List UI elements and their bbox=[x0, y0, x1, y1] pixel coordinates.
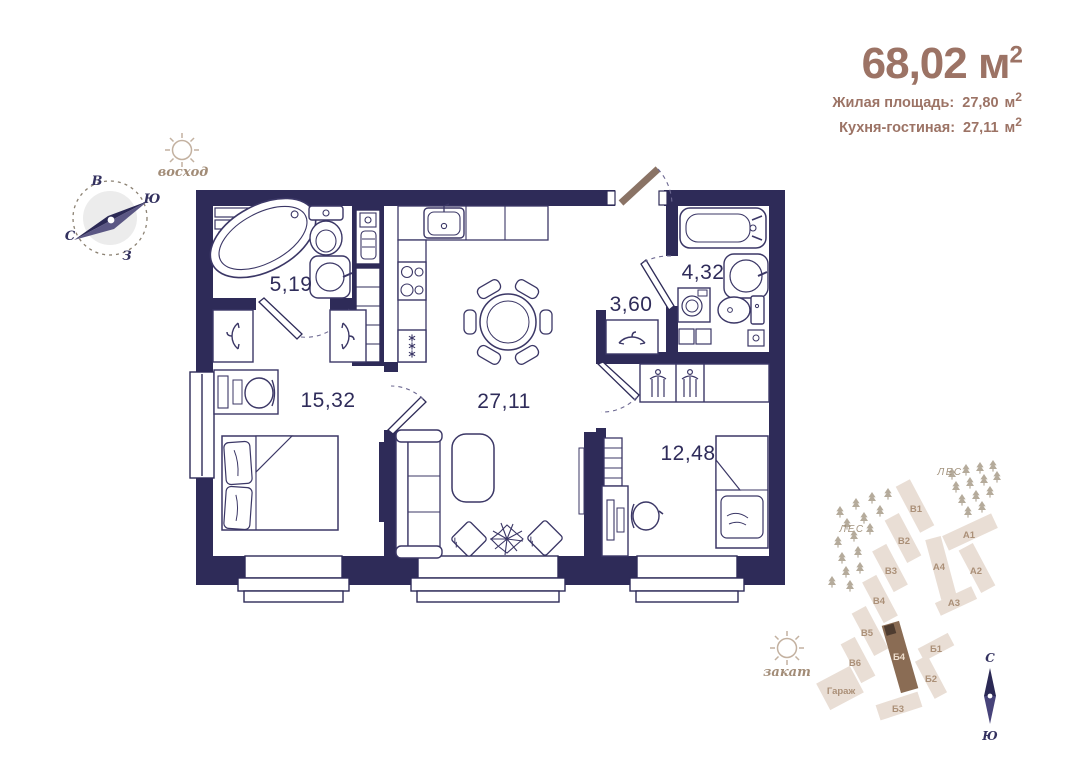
toilet-icon bbox=[309, 206, 343, 255]
living-area-unit: м bbox=[1005, 95, 1016, 111]
bathtub-icon bbox=[680, 208, 766, 248]
site-buildings bbox=[816, 479, 998, 720]
kitchen-counter bbox=[398, 206, 548, 240]
floor-plan-page: 68,02 м2 Жилая площадь:27,80м2 Кухня-гос… bbox=[0, 0, 1090, 761]
double-bed-icon bbox=[222, 436, 338, 530]
total-area-exp: 2 bbox=[1010, 41, 1022, 68]
tv-icon bbox=[579, 448, 584, 514]
building-label-v3: В3 bbox=[885, 566, 897, 577]
bedroom-door bbox=[388, 386, 426, 434]
building-label-a1: А1 bbox=[963, 530, 976, 541]
pillow-icon bbox=[224, 441, 253, 485]
entrance-door-leaf bbox=[621, 169, 658, 203]
pillow-icon bbox=[721, 496, 763, 538]
compass-label-top: В bbox=[91, 174, 103, 189]
kitchen-area-exp: 2 bbox=[1015, 115, 1022, 129]
building-label-v6: В6 bbox=[849, 658, 861, 669]
compass-label-right: Ю bbox=[143, 192, 161, 207]
siteplan: ЛЕС ЛЕС В1 В2 В3 bbox=[816, 460, 1001, 743]
total-area: 68,02 м2 bbox=[832, 42, 1022, 86]
chair-icon bbox=[632, 502, 664, 530]
living-area bbox=[396, 430, 584, 559]
sunrise-icon bbox=[165, 133, 199, 167]
site-compass-needle-bottom bbox=[984, 696, 996, 724]
total-area-unit: м bbox=[978, 39, 1010, 88]
sunset-icon bbox=[770, 631, 804, 665]
kitchen-area-value: 27,11 bbox=[963, 120, 999, 136]
sunset-label: закат bbox=[763, 665, 811, 680]
pouf-icon bbox=[449, 521, 487, 559]
sunrise-label: восход bbox=[158, 165, 209, 180]
entrance-door bbox=[607, 169, 672, 205]
building-label-garage: Гараж bbox=[827, 686, 856, 697]
round-sink-icon bbox=[724, 254, 768, 298]
bedroom-closets bbox=[213, 310, 366, 362]
forest-label-left: ЛЕС bbox=[838, 524, 864, 535]
forest-label-right: ЛЕС bbox=[936, 467, 962, 478]
compass-pivot bbox=[108, 217, 115, 224]
area-header: 68,02 м2 Жилая площадь:27,80м2 Кухня-гос… bbox=[832, 42, 1022, 136]
boiler-icon bbox=[361, 231, 376, 259]
floorplan: 5,19 15,32 27,11 3,60 4,32 12,48 bbox=[190, 169, 785, 602]
storage-box bbox=[696, 329, 711, 344]
building-label-b1: Б1 bbox=[930, 644, 943, 655]
forest-cluster-left bbox=[828, 488, 892, 592]
kitchen-sink-icon bbox=[424, 204, 464, 238]
storage-box bbox=[679, 329, 694, 344]
compass-label-bottom: З bbox=[122, 249, 131, 264]
sink-icon bbox=[310, 256, 352, 298]
building-label-v5: В5 bbox=[861, 628, 874, 639]
room-label-kitchen-living: 27,11 bbox=[477, 390, 531, 413]
building-label-a3: А3 bbox=[948, 598, 960, 609]
window-bedroom bbox=[238, 556, 349, 602]
shelf-icon bbox=[604, 438, 622, 486]
building-label-a4: А4 bbox=[933, 562, 946, 573]
washing-machine-icon bbox=[678, 288, 710, 322]
stove-icon bbox=[398, 262, 426, 300]
room-label-bathroom: 4,32 bbox=[682, 261, 725, 284]
pillow-icon bbox=[224, 486, 253, 530]
main-compass: В Ю С З bbox=[65, 174, 161, 264]
site-compass-south: Ю bbox=[981, 729, 997, 743]
compass-label-left: С bbox=[65, 229, 76, 244]
building-label-v4: В4 bbox=[873, 596, 886, 607]
kitchen-area-label: Кухня-гостиная: bbox=[839, 120, 955, 136]
tv-unit-living bbox=[584, 432, 598, 556]
window-second-bedroom bbox=[630, 556, 744, 602]
floor-drain-icon bbox=[748, 330, 764, 346]
window-left bbox=[190, 372, 214, 478]
room-label-bedroom: 15,32 bbox=[300, 389, 355, 412]
sofa-icon bbox=[396, 430, 442, 558]
building-label-v1: В1 bbox=[910, 504, 923, 515]
building-label-b2: Б2 bbox=[925, 674, 937, 685]
wardrobe-icon bbox=[640, 364, 769, 402]
room-label-bathroom-small: 5,19 bbox=[270, 273, 313, 296]
living-area-row: Жилая площадь:27,80м2 bbox=[832, 90, 1022, 111]
pouf-icon bbox=[525, 520, 563, 558]
tv-bedroom bbox=[379, 442, 384, 522]
room-label-hallway: 3,60 bbox=[610, 293, 653, 316]
desk-icon bbox=[602, 486, 628, 556]
site-compass-needle-top bbox=[984, 668, 996, 696]
site-compass: С Ю bbox=[981, 651, 997, 743]
plant-icon bbox=[490, 523, 523, 555]
living-area-label: Жилая площадь: bbox=[832, 95, 954, 111]
coffee-table-icon bbox=[452, 434, 494, 502]
window-living bbox=[411, 556, 565, 602]
living-area-value: 27,80 bbox=[962, 95, 998, 111]
toilet-icon bbox=[718, 296, 764, 324]
site-compass-north: С bbox=[985, 651, 995, 665]
dining-table-icon bbox=[464, 278, 552, 366]
building-label-b4: Б4 bbox=[893, 652, 906, 663]
building-label-b3: Б3 bbox=[892, 704, 904, 715]
site-compass-pivot bbox=[988, 694, 993, 699]
building-label-v2: В2 bbox=[898, 536, 910, 547]
kitchen-area-row: Кухня-гостиная:27,11м2 bbox=[832, 115, 1022, 136]
living-area-exp: 2 bbox=[1015, 90, 1022, 104]
room-label-second-bedroom: 12,48 bbox=[660, 442, 715, 465]
single-bed-icon bbox=[716, 436, 768, 548]
building-label-a2: А2 bbox=[970, 566, 982, 577]
kitchen-area-unit: м bbox=[1005, 120, 1016, 136]
total-area-value: 68,02 bbox=[862, 39, 967, 88]
